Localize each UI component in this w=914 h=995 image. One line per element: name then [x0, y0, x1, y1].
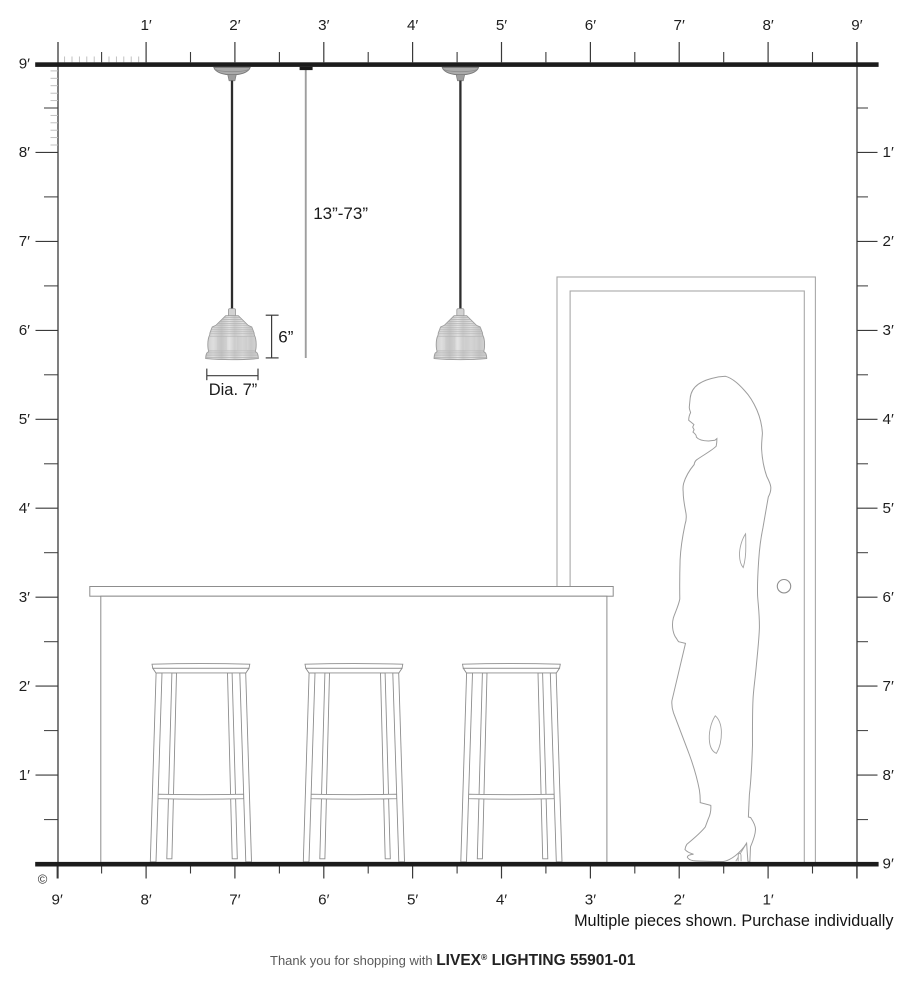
svg-text:13”-73”: 13”-73”: [313, 204, 368, 223]
svg-text:4′: 4′: [496, 892, 507, 909]
svg-text:8′: 8′: [19, 144, 30, 161]
svg-text:9′: 9′: [883, 855, 894, 872]
svg-text:8′: 8′: [762, 17, 773, 34]
svg-text:Thank you for shopping with LI: Thank you for shopping with LIVEX® LIGHT…: [270, 952, 636, 969]
svg-text:6′: 6′: [883, 589, 894, 606]
svg-text:6”: 6”: [278, 328, 293, 347]
svg-text:6′: 6′: [585, 17, 596, 34]
svg-text:5′: 5′: [19, 411, 30, 428]
svg-text:Dia. 7”: Dia. 7”: [209, 381, 258, 399]
svg-text:3′: 3′: [19, 589, 30, 606]
svg-text:8′: 8′: [140, 892, 151, 909]
svg-text:9′: 9′: [851, 17, 862, 34]
svg-text:1′: 1′: [883, 144, 894, 161]
svg-text:2′: 2′: [19, 678, 30, 695]
svg-text:7′: 7′: [229, 892, 240, 909]
svg-text:6′: 6′: [19, 322, 30, 339]
svg-text:5′: 5′: [496, 17, 507, 34]
svg-text:3′: 3′: [883, 322, 894, 339]
svg-text:8′: 8′: [883, 767, 894, 784]
svg-text:2′: 2′: [229, 17, 240, 34]
svg-text:3′: 3′: [585, 892, 596, 909]
svg-text:5′: 5′: [407, 892, 418, 909]
svg-text:Multiple pieces shown. Purcha: Multiple pieces shown. Purchase individu…: [574, 912, 894, 930]
svg-text:7′: 7′: [674, 17, 685, 34]
svg-text:9′: 9′: [19, 55, 30, 72]
svg-text:3′: 3′: [318, 17, 329, 34]
svg-text:6′: 6′: [318, 892, 329, 909]
svg-text:©: ©: [38, 872, 48, 887]
svg-text:4′: 4′: [19, 500, 30, 517]
svg-text:9′: 9′: [52, 892, 63, 909]
svg-text:2′: 2′: [883, 233, 894, 250]
svg-text:7′: 7′: [883, 678, 894, 695]
svg-text:1′: 1′: [140, 17, 151, 34]
svg-text:7′: 7′: [19, 233, 30, 250]
svg-text:4′: 4′: [883, 411, 894, 428]
svg-text:2′: 2′: [674, 892, 685, 909]
svg-text:1′: 1′: [762, 892, 773, 909]
svg-text:5′: 5′: [883, 500, 894, 517]
svg-text:4′: 4′: [407, 17, 418, 34]
svg-text:1′: 1′: [19, 767, 30, 784]
